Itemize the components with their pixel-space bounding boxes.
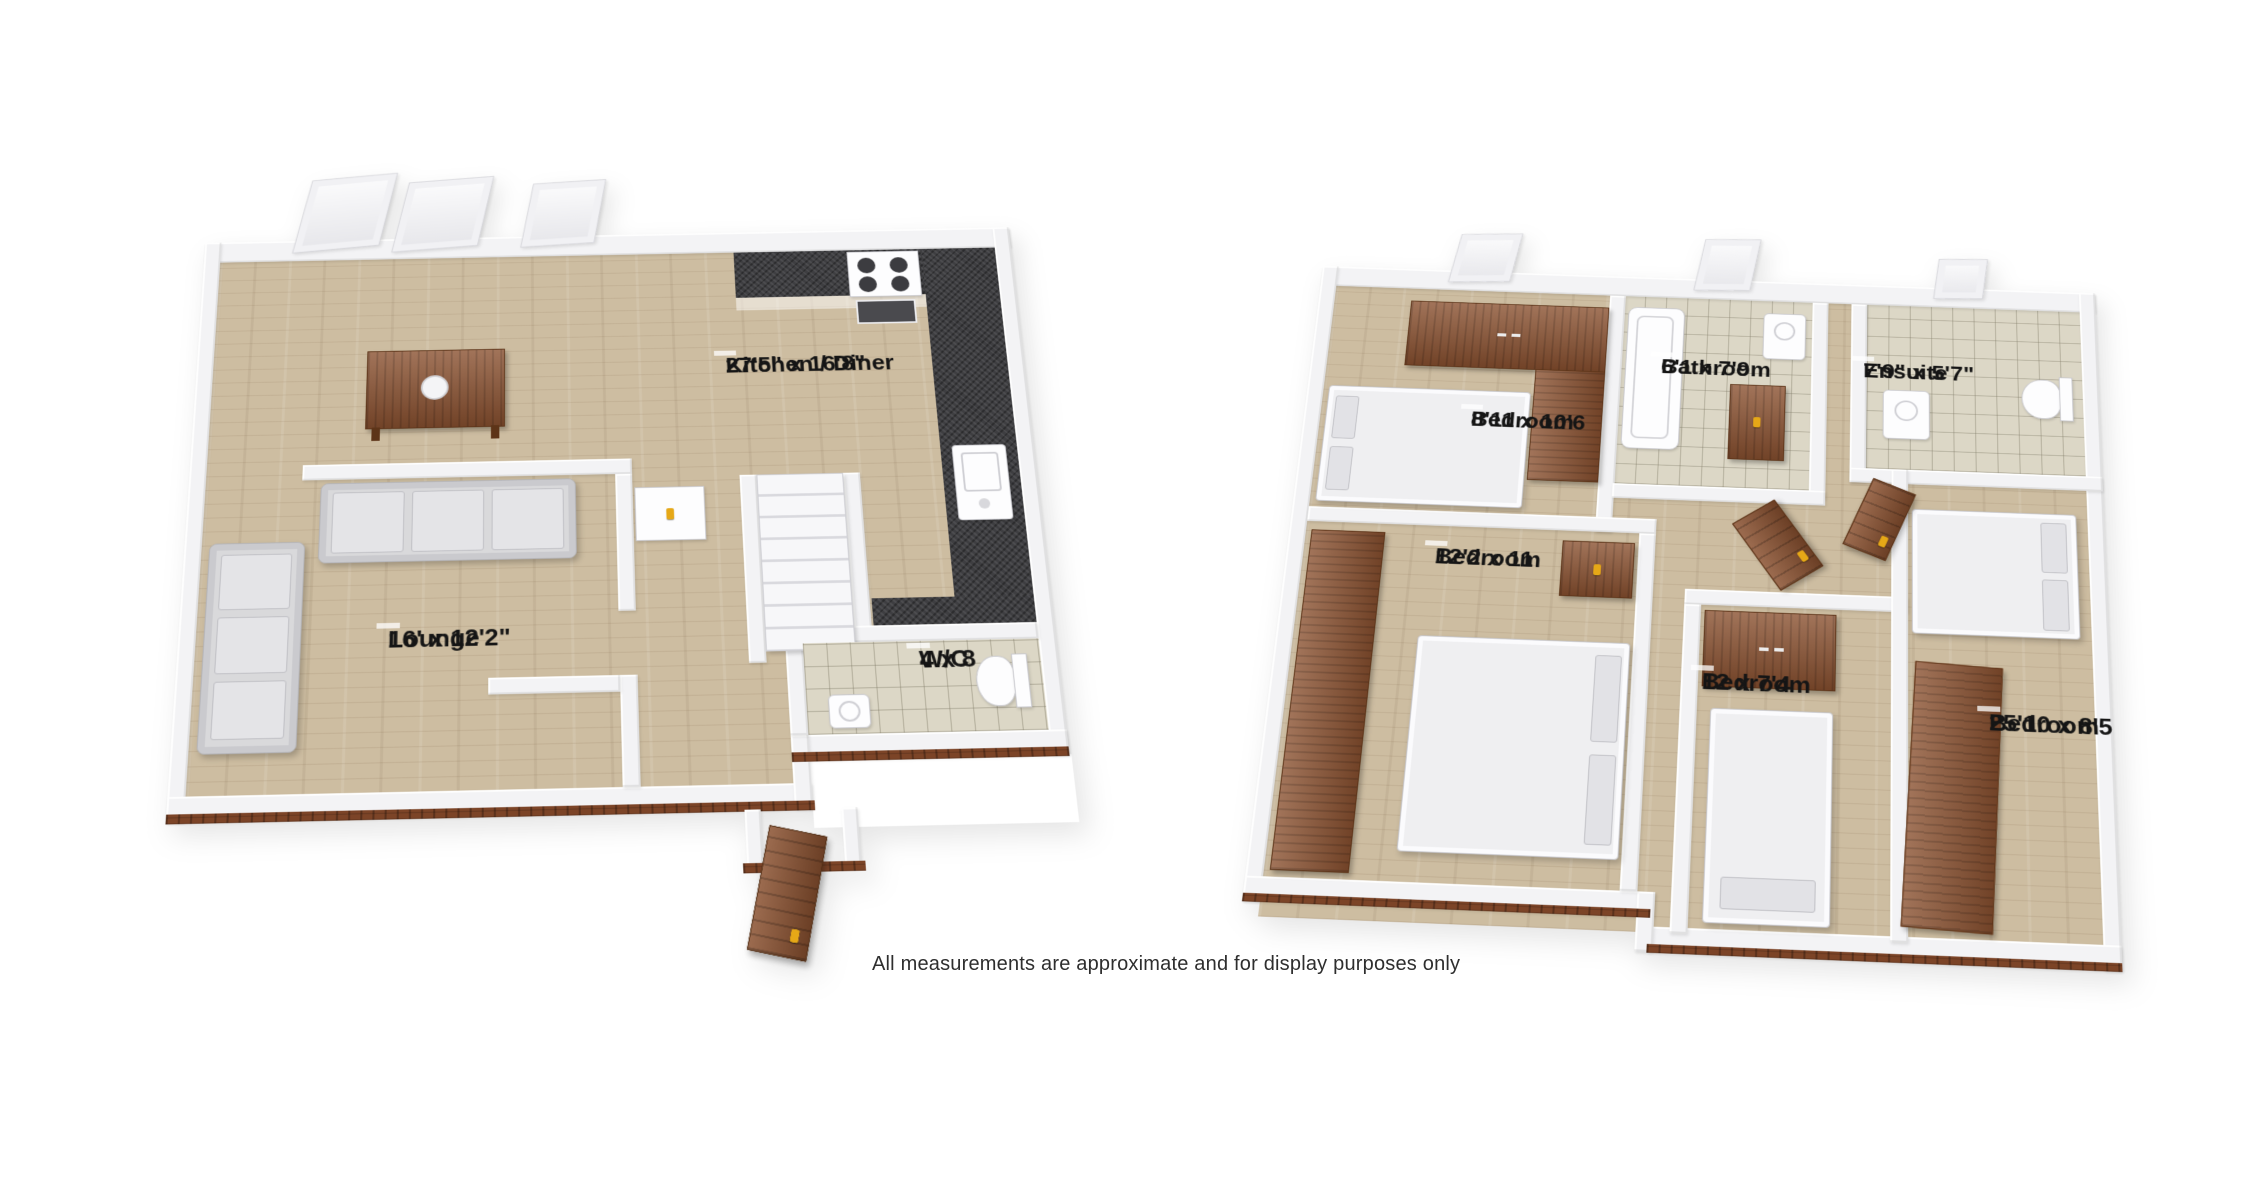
- room-dims: 4 x 8: [918, 644, 977, 673]
- bathroom-sink-icon: [1762, 313, 1806, 360]
- hob-icon: [846, 251, 922, 298]
- wardrobe: [1404, 301, 1609, 373]
- room-dims: 6'1 x 7'9: [1660, 354, 1750, 380]
- window-icon: [1933, 259, 1988, 299]
- ensuite-sink-icon: [1883, 390, 1930, 441]
- bathtub-icon: [1620, 307, 1685, 450]
- room-label-wc: W/C 4 x 8: [906, 643, 930, 649]
- room-label-ensuite: Ensuite 7'9" x 5'7": [1853, 356, 1874, 361]
- toilet-cistern: [2059, 377, 2074, 421]
- oven-icon: [856, 299, 918, 324]
- room-dims: 27'5" x 16'8": [725, 350, 867, 377]
- room-label-kitchen: Kitchen / Diner 27'5" x 16'8": [714, 351, 736, 356]
- wardrobe-long: [1901, 661, 2003, 935]
- room-label-bedroom2: Bedroom 12'2 x 11: [1425, 540, 1448, 546]
- room-label-bedroom3: Bedroom 12 x 7'4: [1691, 665, 1714, 671]
- staircase: [756, 473, 856, 652]
- bed-double: [1912, 509, 2081, 640]
- sofa-three-seat: [318, 478, 577, 563]
- wc-basin-icon: [828, 694, 872, 729]
- ground-floor-plan: Kitchen / Diner 27'5" x 16'8" Lounge 16'…: [165, 214, 1077, 839]
- dining-table: [365, 349, 505, 430]
- window-icon: [391, 176, 494, 253]
- first-floor-plan: Bedroom 8'11 x 10'6 Bathroom 6'1 x 7'9 E…: [1237, 256, 2123, 977]
- table-leg: [491, 425, 499, 439]
- bed-single: [1702, 708, 1833, 928]
- room-dims: 12 x 7'4: [1701, 668, 1791, 698]
- wall-lounge-right-lower: [620, 675, 641, 787]
- room-dims: 8'11 x 10'6: [1470, 407, 1586, 435]
- room-label-lounge: Lounge 16' x 12'2": [376, 623, 399, 629]
- bedside-chest: [1559, 540, 1635, 598]
- bathroom-vanity: [1727, 384, 1785, 461]
- window-icon: [520, 179, 606, 248]
- room-dims: 12'2 x 11: [1434, 543, 1535, 572]
- bed-double: [1315, 385, 1531, 508]
- bed-double: [1396, 635, 1630, 860]
- porch-jamb-left: [744, 809, 763, 867]
- disclaimer-text: All measurements are approximate and for…: [872, 953, 1460, 976]
- room-label-bedroom1: Bedroom 8'11 x 10'6: [1461, 404, 1483, 409]
- outer-wall-step: [1634, 891, 1655, 952]
- hall-cabinet: [634, 486, 706, 541]
- room-label-bathroom: Bathroom 6'1 x 7'9: [1651, 352, 1673, 357]
- room-dims: 7'9" x 5'7": [1863, 359, 1974, 386]
- table-leg: [371, 427, 380, 441]
- wall-ensuite-left: [1849, 304, 1867, 482]
- floorplan-image: Kitchen / Diner 27'5" x 16'8" Lounge 16'…: [0, 0, 2246, 1190]
- wall-entry-stub: [488, 675, 620, 695]
- window-icon: [1693, 239, 1761, 291]
- room-label-bedroom4: Bedroom 25'10 x 8'5: [1977, 706, 2000, 712]
- sofa-two-seat: [196, 542, 305, 755]
- room-dims: 25'10 x 8'5: [1989, 709, 2113, 741]
- room-dims: 16' x 12'2": [388, 623, 511, 653]
- wall-bathroom-right: [1809, 303, 1829, 499]
- kitchen-sink-icon: [951, 444, 1013, 520]
